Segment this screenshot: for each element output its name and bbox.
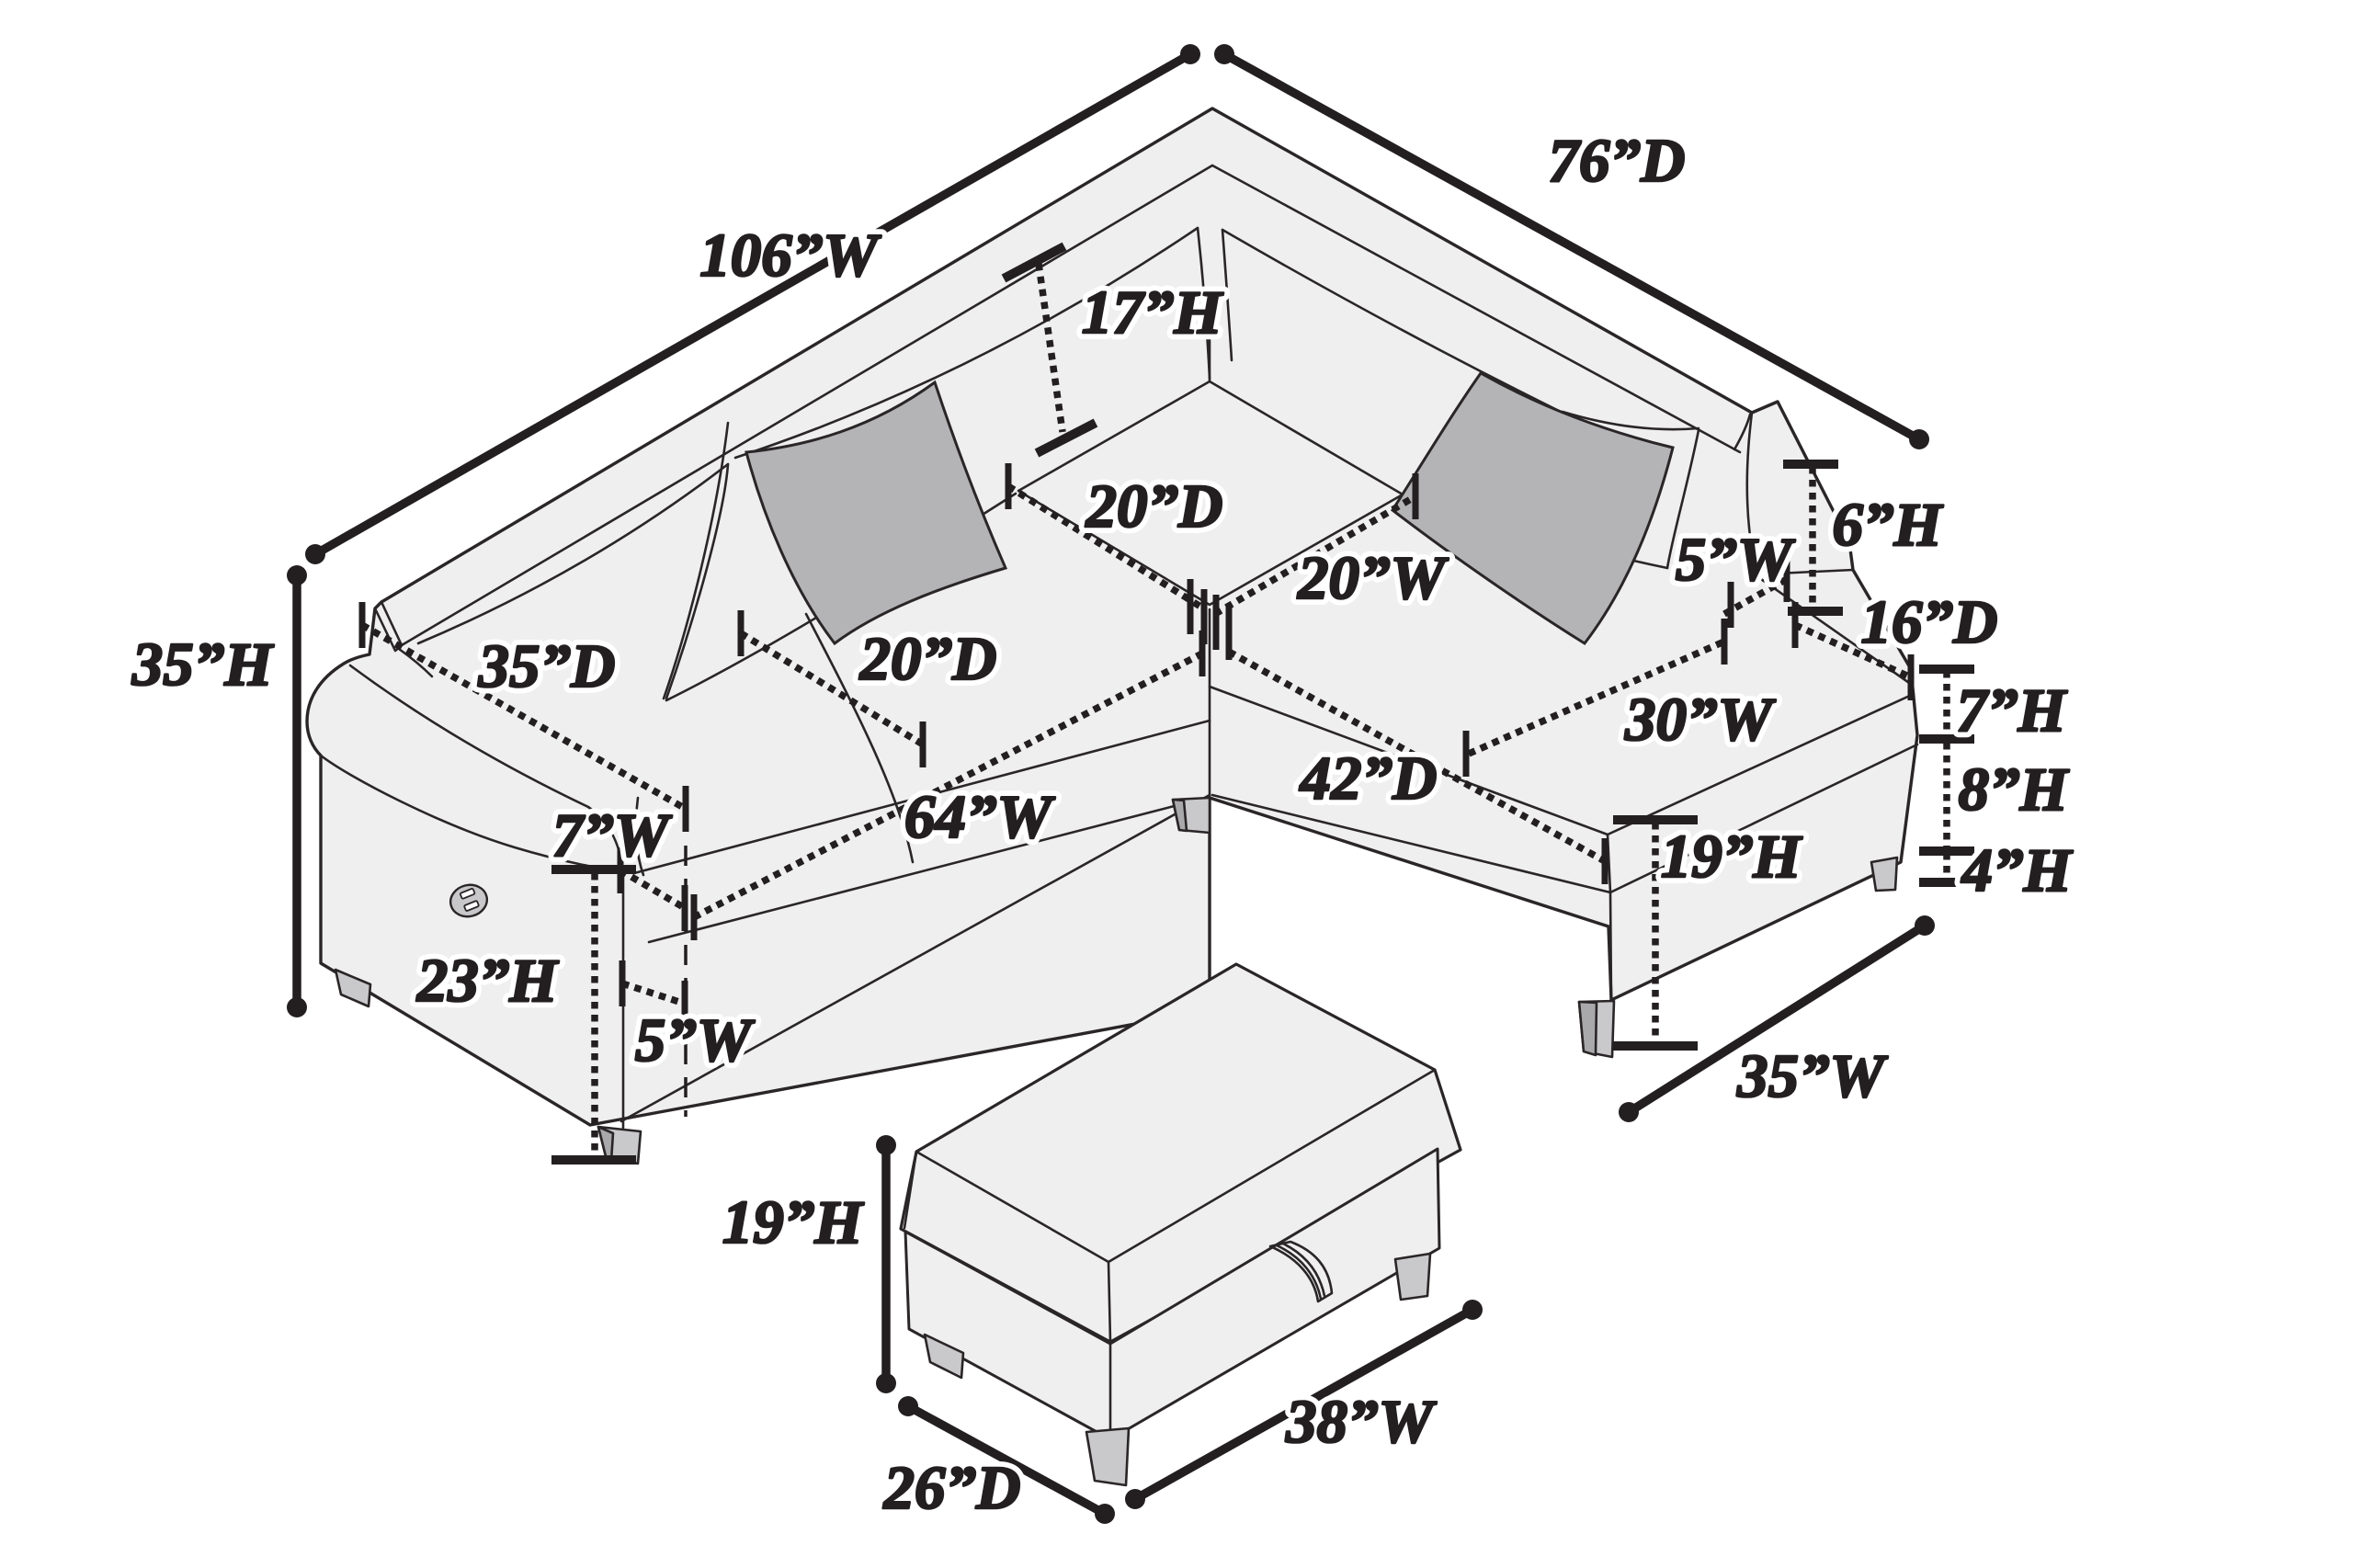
svg-text:16”D: 16”D <box>1861 588 1998 656</box>
svg-text:76”D: 76”D <box>1549 127 1686 195</box>
svg-text:7”H: 7”H <box>1956 676 2067 744</box>
svg-text:35”H: 35”H <box>131 631 275 699</box>
svg-text:38”W: 38”W <box>1285 1388 1438 1456</box>
svg-text:5”W: 5”W <box>1676 526 1796 594</box>
svg-text:30”W: 30”W <box>1624 686 1777 754</box>
svg-text:20”W: 20”W <box>1297 544 1449 612</box>
svg-text:4”H: 4”H <box>1960 836 2073 904</box>
svg-text:19”H: 19”H <box>1661 823 1803 891</box>
svg-text:106”W: 106”W <box>699 222 881 290</box>
svg-text:20”D: 20”D <box>1086 472 1223 540</box>
svg-text:26”D: 26”D <box>883 1454 1021 1522</box>
svg-text:20”D: 20”D <box>859 625 997 693</box>
svg-text:35”W: 35”W <box>1736 1042 1889 1110</box>
svg-text:19”H: 19”H <box>722 1188 865 1256</box>
svg-text:8”H: 8”H <box>1958 756 2069 824</box>
svg-text:7”W: 7”W <box>552 801 673 869</box>
svg-text:64”W: 64”W <box>904 783 1056 851</box>
svg-text:35”D: 35”D <box>478 632 616 700</box>
svg-text:23”H: 23”H <box>416 947 560 1015</box>
svg-text:17”H: 17”H <box>1082 278 1224 347</box>
svg-text:6”H: 6”H <box>1832 491 1943 559</box>
svg-text:42”D: 42”D <box>1299 744 1438 812</box>
svg-text:5”W: 5”W <box>635 1006 756 1074</box>
